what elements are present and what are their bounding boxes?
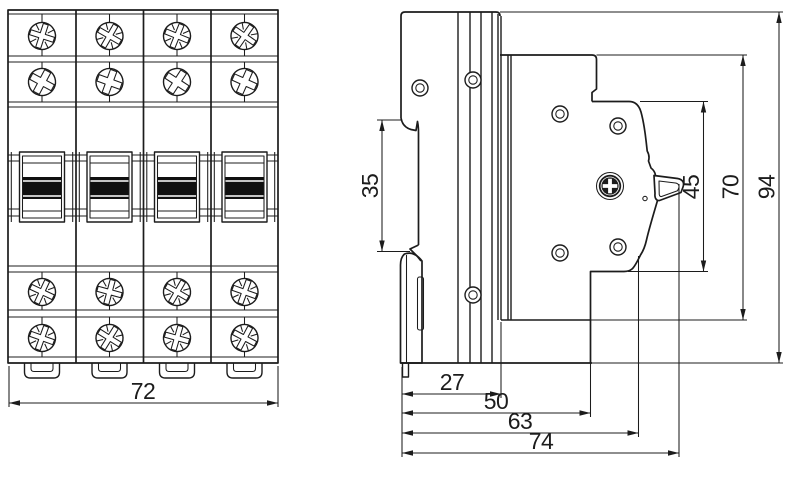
housing-ribs (458, 12, 511, 363)
tab (25, 363, 60, 378)
screw-icon (91, 18, 128, 55)
center-screw-icon (597, 173, 624, 200)
screw-icon (91, 319, 128, 356)
toggle-handle (87, 152, 132, 222)
side-view: 35 45 70 94 (357, 12, 783, 457)
din-clip (401, 253, 423, 363)
screw-icon (227, 64, 263, 100)
rivet-icon (412, 80, 428, 96)
screw-icon (93, 275, 126, 308)
dim-label-depth-overall: 74 (529, 428, 554, 454)
din-clip-tab (403, 363, 409, 377)
rivet-icon (552, 245, 568, 261)
toggle-handle (222, 152, 267, 222)
dimension-din-slot-height: 35 (357, 120, 410, 252)
rivet-icon (610, 118, 626, 134)
tab-notch (99, 363, 121, 372)
escutcheon-lower (591, 201, 658, 364)
technical-drawing: 72 (0, 0, 790, 478)
screw-icon (160, 321, 193, 354)
screw-icon (226, 320, 263, 357)
dim-label-depth-rear: 27 (440, 369, 465, 395)
screw-icon (24, 274, 60, 310)
tab (92, 363, 127, 378)
screw-icon (227, 275, 262, 310)
escutcheon-upper (592, 102, 656, 176)
front-housing-top (500, 55, 597, 102)
drawing-canvas: 72 (0, 0, 790, 478)
screw-icon (25, 321, 60, 356)
rivet-icon (465, 287, 481, 303)
dim-label-din-slot: 35 (357, 174, 383, 199)
rear-housing-top (401, 12, 500, 16)
dimension-depth-escutcheon: 63 (402, 256, 639, 437)
dimension-depth-body: 50 (402, 363, 591, 417)
rivet-icon (610, 239, 626, 255)
dimension-front-width: 72 (9, 366, 278, 407)
dimension-depth-rear: 27 (402, 322, 501, 398)
tab (160, 363, 195, 378)
tab-notch (31, 363, 53, 372)
screw-icon (226, 17, 264, 55)
rivet-icon (465, 72, 481, 88)
dim-label-escutcheon: 45 (678, 175, 704, 200)
screw-icon (25, 19, 59, 53)
toggle-handle (155, 152, 200, 222)
tab-notch (166, 363, 188, 372)
dim-label-front-width: 72 (131, 378, 156, 404)
toggle-handle (20, 152, 65, 222)
bottom-tabs (25, 363, 263, 378)
screw-icon (92, 65, 127, 100)
tab (227, 363, 262, 378)
screw-icon (159, 274, 196, 311)
pivot-dot (643, 196, 647, 200)
dim-label-depth-body: 50 (484, 388, 509, 414)
rivet-icon (552, 106, 568, 122)
screw-icon (159, 18, 194, 53)
dim-label-housing: 70 (718, 175, 744, 200)
din-hook-top (401, 118, 419, 245)
rivets (412, 72, 626, 303)
screw-icon (158, 63, 195, 100)
front-view: 72 (8, 10, 278, 407)
screw-icon (24, 64, 61, 101)
dim-label-overall-height: 94 (754, 174, 780, 199)
tab-notch (234, 363, 256, 372)
